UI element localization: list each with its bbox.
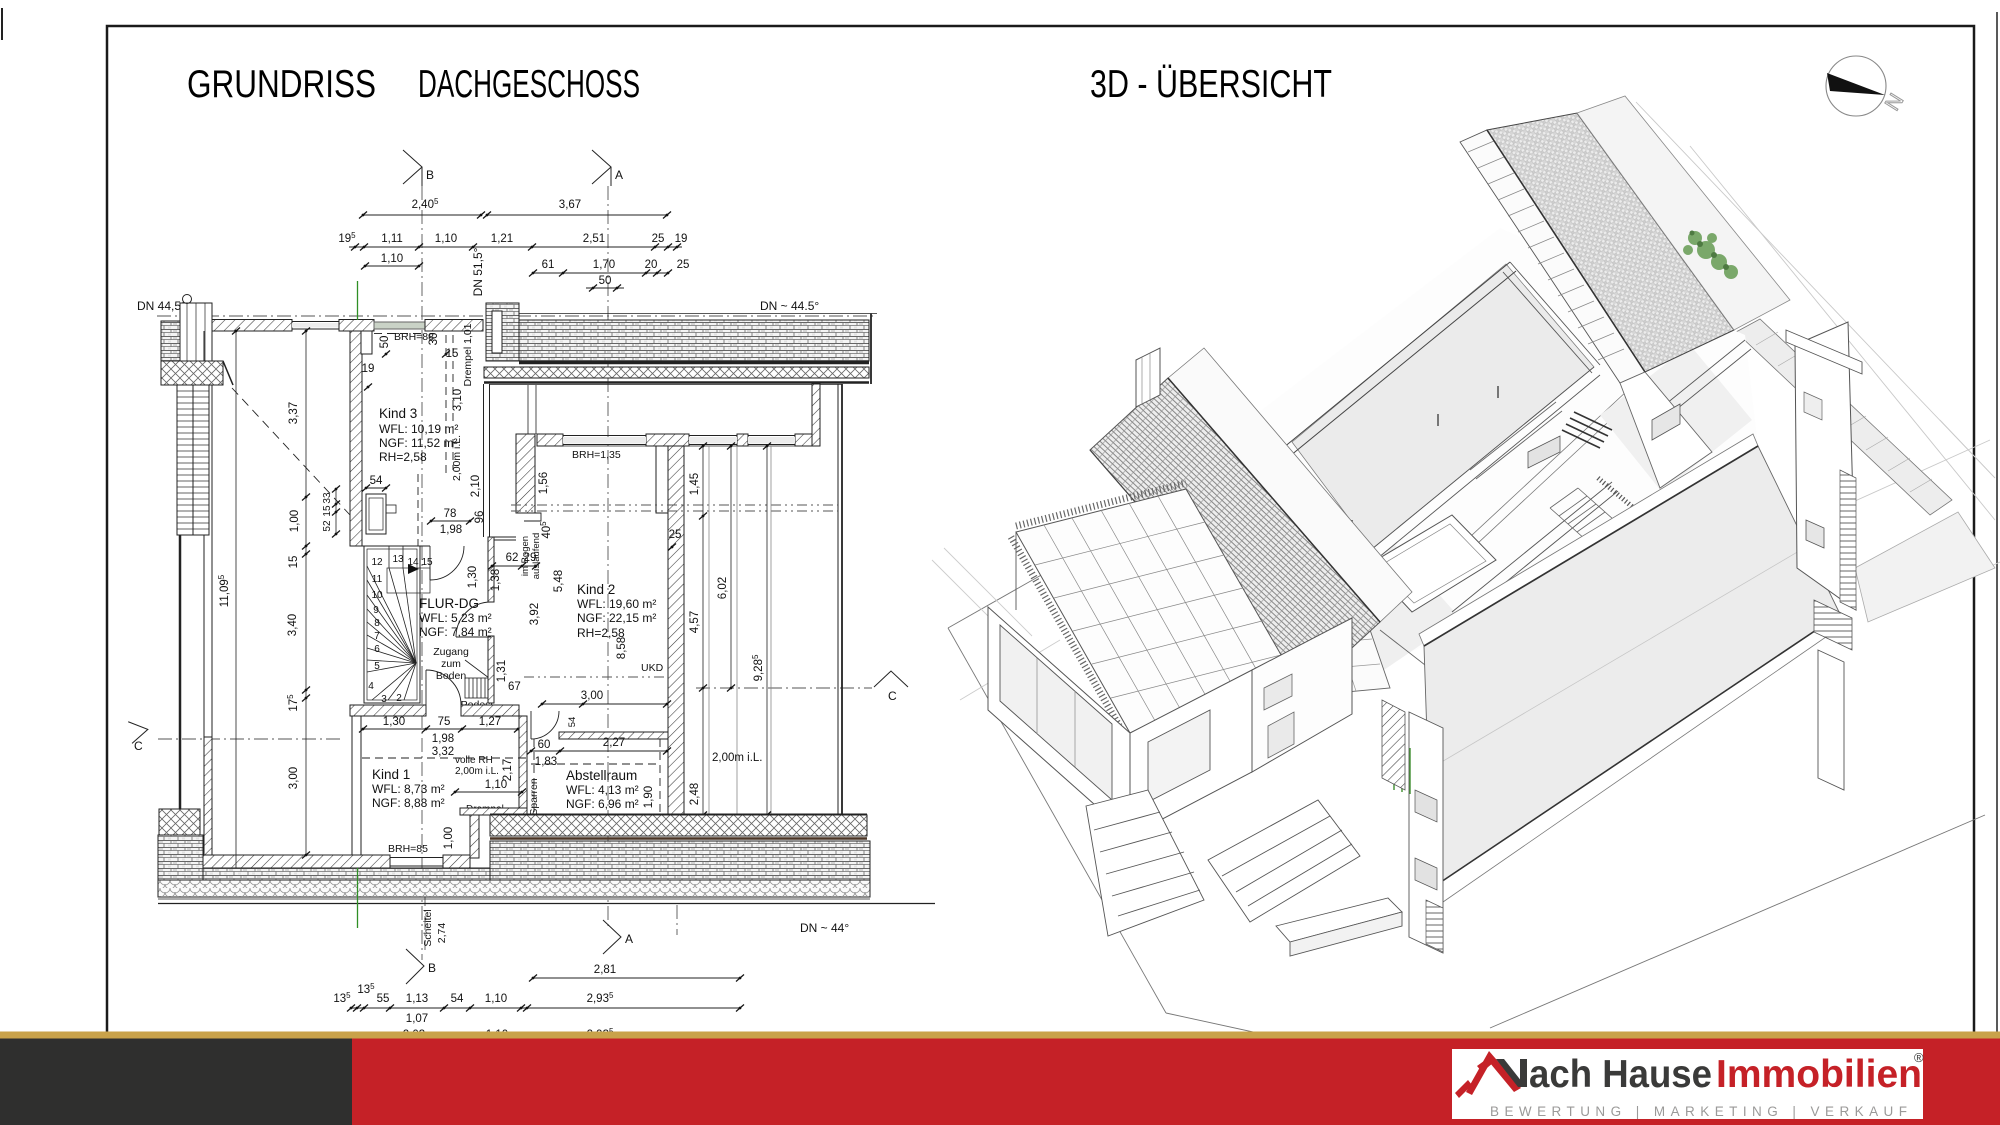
- svg-text:1,30: 1,30: [467, 566, 479, 588]
- svg-text:29: 29: [524, 552, 537, 564]
- svg-text:BRH=1,35: BRH=1,35: [572, 449, 621, 461]
- svg-text:Kind 1: Kind 1: [372, 767, 410, 782]
- svg-text:25: 25: [677, 259, 690, 271]
- svg-text:61: 61: [542, 259, 555, 271]
- svg-text:5,48: 5,48: [553, 570, 565, 592]
- svg-text:DN ~ 44.5°: DN ~ 44.5°: [760, 299, 819, 313]
- svg-text:6: 6: [374, 644, 380, 655]
- svg-text:1,10: 1,10: [435, 233, 457, 245]
- svg-text:C: C: [888, 689, 897, 703]
- svg-text:RH=2,58: RH=2,58: [379, 450, 427, 464]
- svg-text:1,13: 1,13: [406, 993, 428, 1005]
- svg-text:15: 15: [288, 556, 300, 569]
- svg-text:3,00: 3,00: [288, 767, 300, 789]
- svg-text:1,00: 1,00: [443, 827, 455, 849]
- svg-text:volle RH: volle RH: [455, 755, 493, 766]
- svg-text:1,98: 1,98: [432, 733, 454, 745]
- svg-text:3,00: 3,00: [581, 690, 603, 702]
- svg-text:Kind 3: Kind 3: [379, 406, 417, 421]
- svg-text:GRUNDRISS: GRUNDRISS: [187, 63, 376, 106]
- svg-text:13: 13: [392, 554, 404, 565]
- svg-text:25: 25: [669, 529, 682, 541]
- svg-text:2,00m i.L.: 2,00m i.L.: [451, 435, 463, 481]
- svg-text:Zugang: Zugang: [433, 646, 469, 658]
- svg-text:3: 3: [381, 694, 387, 705]
- svg-text:WFL: 4,13 m²: WFL: 4,13 m²: [566, 783, 639, 797]
- svg-text:9: 9: [373, 605, 379, 616]
- svg-text:78: 78: [444, 508, 457, 520]
- svg-text:19: 19: [362, 363, 375, 375]
- svg-text:19: 19: [675, 233, 688, 245]
- svg-text:C: C: [134, 739, 143, 753]
- svg-text:1,83: 1,83: [535, 756, 557, 768]
- svg-text:54: 54: [451, 993, 464, 1005]
- svg-text:67: 67: [508, 681, 521, 693]
- svg-text:NGF: 6,96 m²: NGF: 6,96 m²: [566, 797, 639, 811]
- svg-text:Abstellraum: Abstellraum: [566, 768, 637, 783]
- svg-text:55: 55: [377, 993, 390, 1005]
- svg-text:Immobilien: Immobilien: [1716, 1053, 1922, 1096]
- svg-text:50: 50: [599, 275, 612, 287]
- svg-text:3,40: 3,40: [287, 614, 299, 636]
- svg-text:Scheitel: Scheitel: [422, 909, 434, 946]
- svg-text:7: 7: [374, 631, 380, 642]
- svg-text:2,81: 2,81: [594, 964, 616, 976]
- svg-text:B: B: [426, 168, 434, 182]
- svg-text:B: B: [428, 961, 436, 975]
- svg-text:2,10: 2,10: [470, 475, 482, 497]
- svg-text:1,07: 1,07: [406, 1013, 428, 1025]
- svg-text:WFL: 5,23 m²: WFL: 5,23 m²: [419, 611, 492, 625]
- svg-text:20: 20: [645, 259, 658, 271]
- svg-text:3,92: 3,92: [529, 603, 541, 625]
- svg-text:15: 15: [322, 505, 333, 517]
- svg-text:1,98: 1,98: [440, 524, 462, 536]
- svg-text:60: 60: [538, 739, 551, 751]
- svg-text:14: 14: [407, 557, 419, 568]
- svg-text:3,37: 3,37: [288, 402, 300, 424]
- svg-text:5: 5: [374, 661, 380, 672]
- svg-text:3,10: 3,10: [452, 389, 464, 411]
- svg-text:2: 2: [396, 693, 402, 704]
- svg-text:NGF: 22,15 m²: NGF: 22,15 m²: [577, 611, 656, 625]
- svg-text:25: 25: [652, 233, 665, 245]
- svg-text:DN 51,5°: DN 51,5°: [471, 247, 485, 296]
- svg-text:1,90: 1,90: [643, 786, 655, 808]
- svg-text:WFL: 19,60 m²: WFL: 19,60 m²: [577, 597, 656, 611]
- svg-text:1,38: 1,38: [490, 569, 502, 591]
- svg-text:4,57: 4,57: [689, 611, 701, 633]
- svg-text:75: 75: [438, 716, 451, 728]
- svg-text:52: 52: [322, 520, 333, 532]
- svg-text:2,51: 2,51: [583, 233, 605, 245]
- svg-text:50: 50: [379, 336, 391, 349]
- svg-text:2,00m i.L.: 2,00m i.L.: [455, 766, 499, 777]
- svg-text:2,00m i.L.: 2,00m i.L.: [712, 752, 763, 764]
- svg-text:DACHGESCHOSS: DACHGESCHOSS: [418, 63, 640, 106]
- svg-text:1,70: 1,70: [593, 259, 615, 271]
- svg-text:1,11: 1,11: [381, 233, 403, 245]
- svg-text:12: 12: [371, 557, 383, 568]
- svg-text:54: 54: [567, 717, 578, 728]
- svg-text:6,02: 6,02: [717, 577, 729, 599]
- svg-text:WFL: 8,73 m²: WFL: 8,73 m²: [372, 782, 445, 796]
- svg-text:BRH=85: BRH=85: [388, 843, 428, 855]
- svg-text:2,27: 2,27: [603, 737, 625, 749]
- svg-text:DN 44,5°: DN 44,5°: [137, 299, 186, 313]
- svg-text:Drempel 1,01: Drempel 1,01: [462, 323, 474, 386]
- svg-text:ach Hause: ach Hause: [1529, 1053, 1712, 1096]
- svg-text:96: 96: [474, 511, 486, 524]
- svg-text:UKD: UKD: [641, 662, 664, 674]
- svg-text:1,27: 1,27: [479, 716, 501, 728]
- svg-text:8: 8: [374, 618, 380, 629]
- svg-text:A: A: [615, 168, 623, 182]
- svg-text:62: 62: [506, 552, 519, 564]
- svg-text:WFL: 10,19 m²: WFL: 10,19 m²: [379, 422, 458, 436]
- svg-text:15: 15: [446, 348, 459, 360]
- svg-text:1,56: 1,56: [538, 472, 550, 494]
- svg-text:1,10: 1,10: [485, 993, 507, 1005]
- svg-text:Kind 2: Kind 2: [577, 582, 615, 597]
- svg-text:54: 54: [370, 475, 383, 487]
- svg-text:DN ~ 44°: DN ~ 44°: [800, 921, 849, 935]
- svg-text:2,48: 2,48: [689, 783, 701, 805]
- svg-text:1,45: 1,45: [689, 473, 701, 495]
- svg-text:11: 11: [372, 574, 383, 585]
- svg-text:A: A: [625, 932, 633, 946]
- svg-text:BEWERTUNG | MARKETING | VERKAU: BEWERTUNG | MARKETING | VERKAUF: [1490, 1104, 1910, 1119]
- svg-text:1,21: 1,21: [491, 233, 513, 245]
- svg-text:®: ®: [1914, 1050, 1924, 1065]
- svg-text:1,00: 1,00: [289, 510, 301, 532]
- svg-text:1,30: 1,30: [383, 716, 405, 728]
- svg-text:NGF: 8,88 m²: NGF: 8,88 m²: [372, 796, 445, 810]
- svg-text:4: 4: [368, 681, 374, 692]
- svg-text:8,58: 8,58: [616, 637, 628, 659]
- svg-text:15: 15: [421, 557, 433, 568]
- svg-text:3,67: 3,67: [559, 199, 581, 211]
- svg-text:33: 33: [322, 492, 333, 504]
- svg-text:zum: zum: [441, 658, 461, 670]
- svg-text:3D - ÜBERSICHT: 3D - ÜBERSICHT: [1090, 63, 1332, 106]
- svg-text:2,74: 2,74: [436, 923, 448, 944]
- svg-text:2,17: 2,17: [502, 759, 514, 781]
- svg-text:3,32: 3,32: [432, 746, 454, 758]
- svg-text:1,31: 1,31: [496, 660, 508, 682]
- svg-text:10: 10: [371, 590, 383, 601]
- svg-text:30: 30: [428, 333, 440, 346]
- svg-text:1,10: 1,10: [381, 253, 403, 265]
